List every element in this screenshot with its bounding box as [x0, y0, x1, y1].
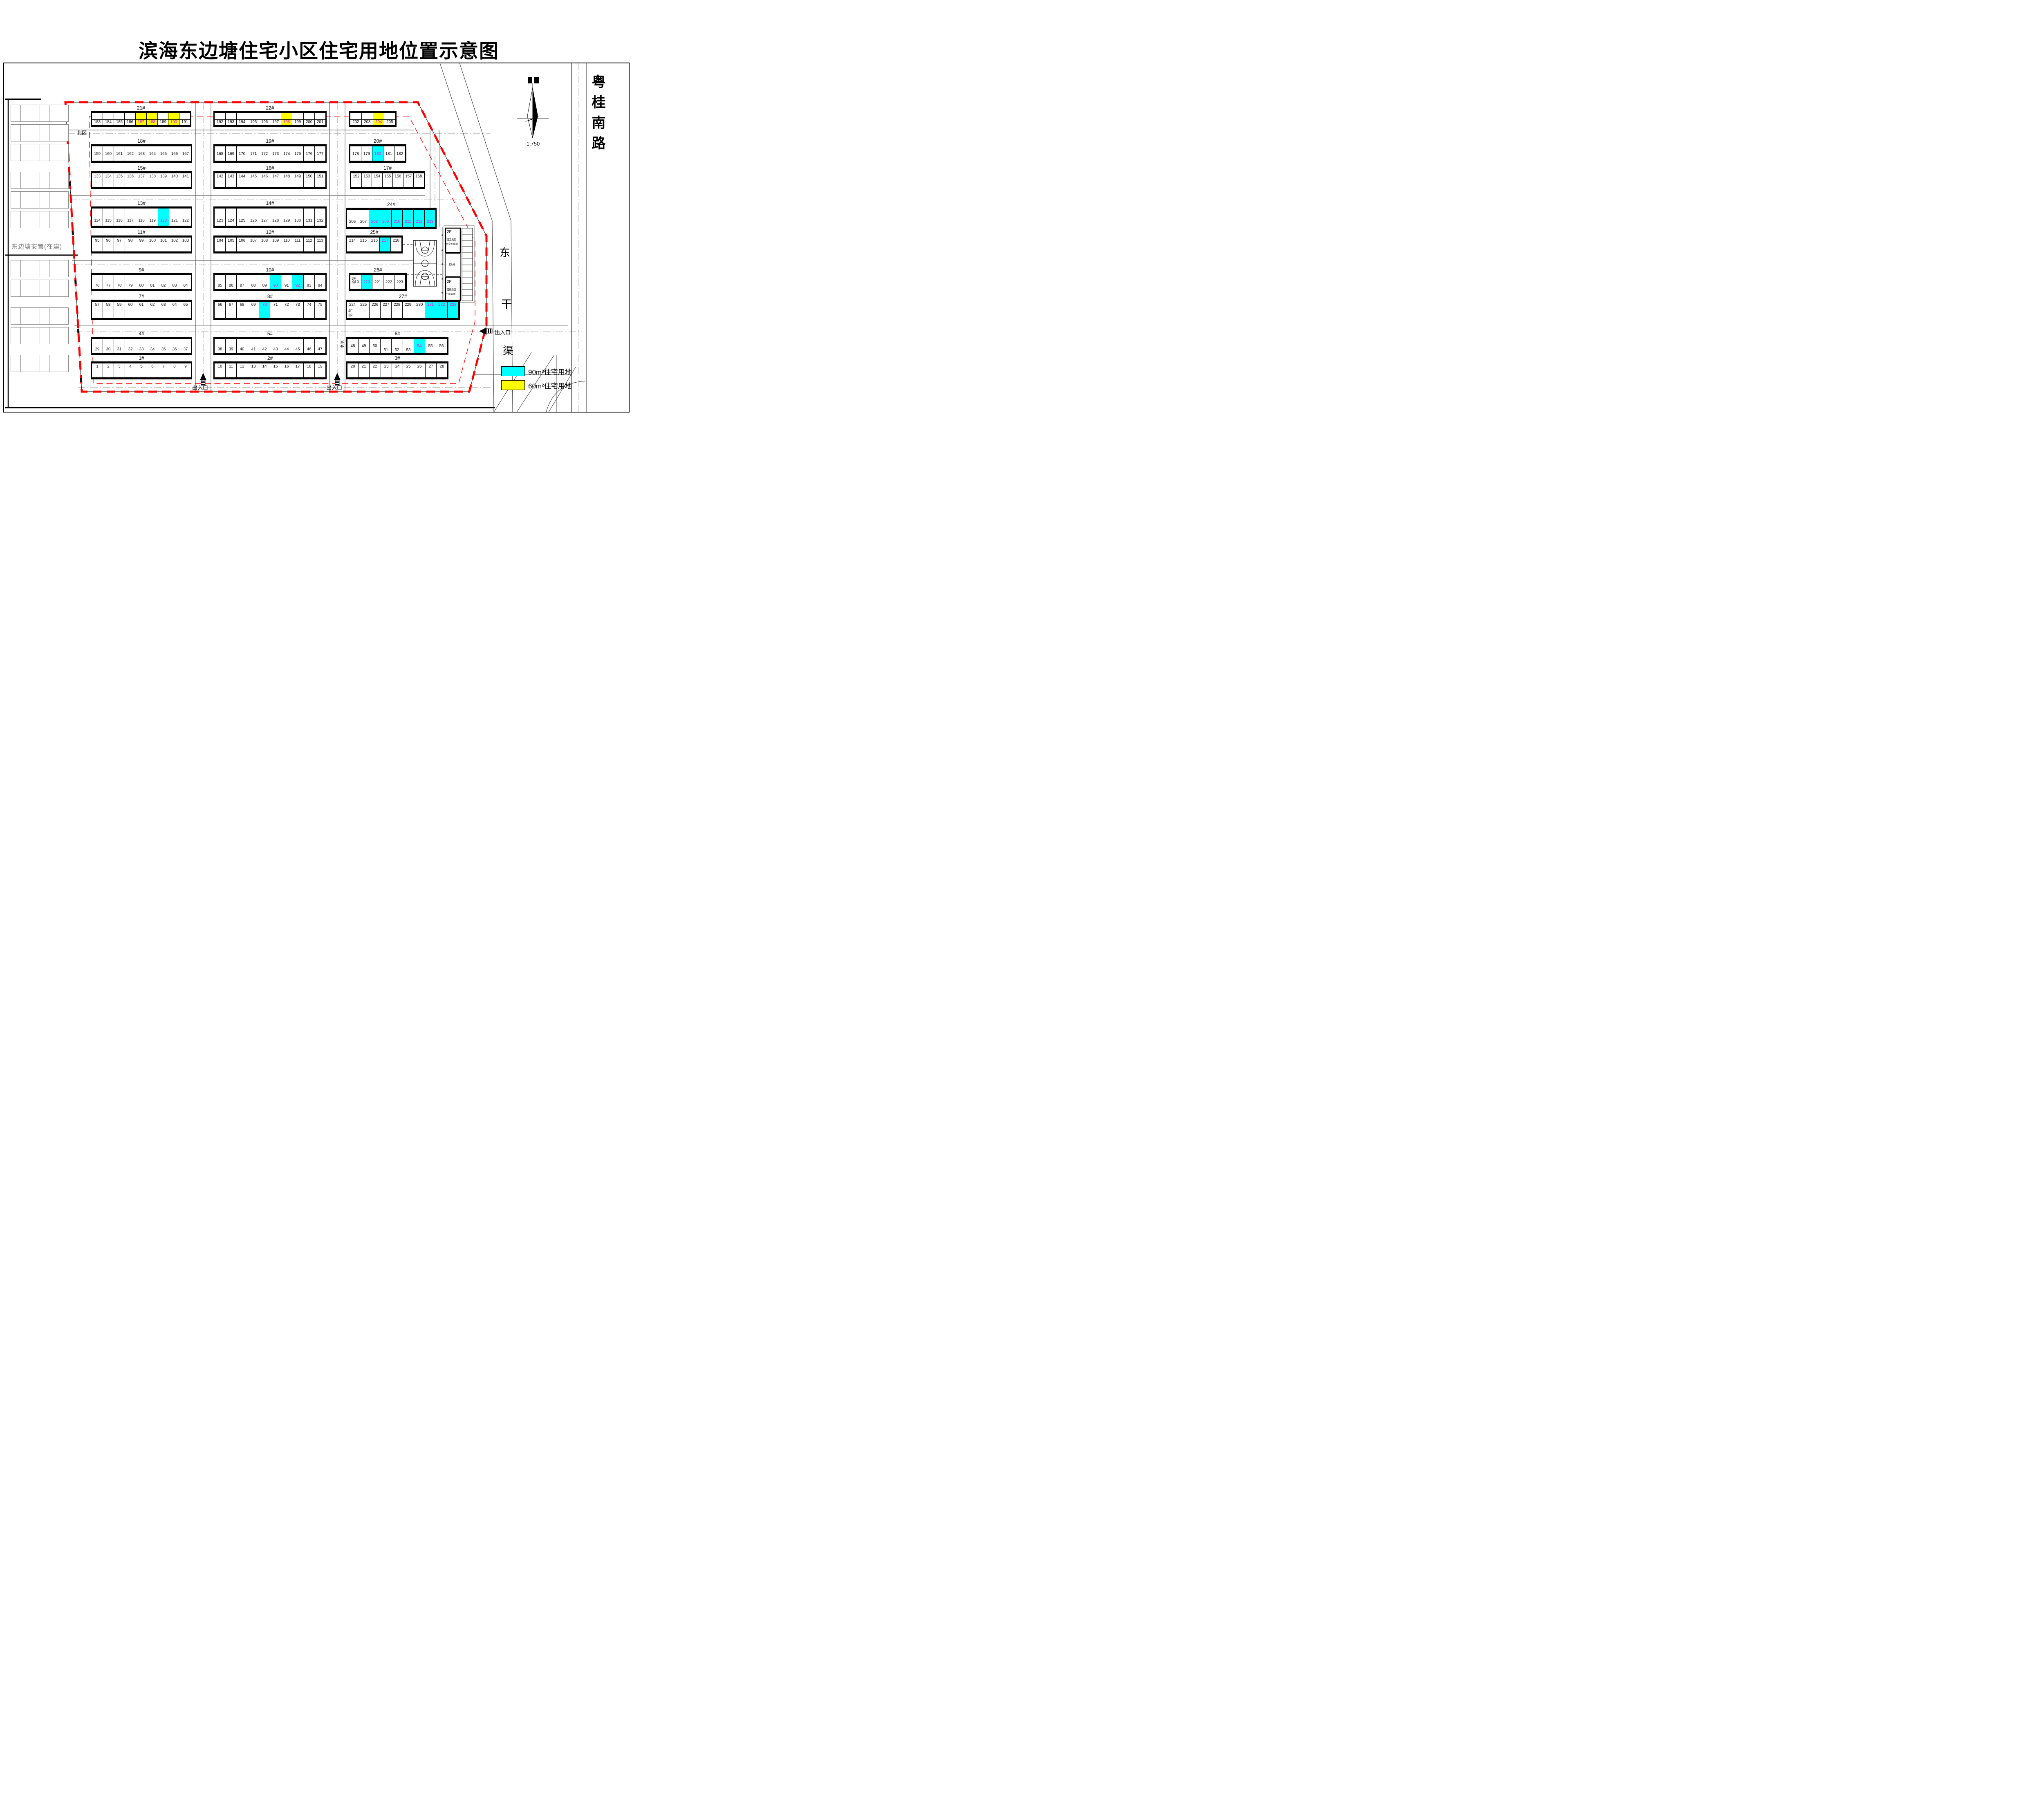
- lot-number: 143: [226, 174, 236, 179]
- lot-number: 73: [293, 303, 303, 307]
- lot-number: 43: [271, 347, 280, 352]
- lot-number: 58: [103, 303, 113, 307]
- lot-number: 177: [315, 151, 325, 156]
- lot-number: 111: [293, 238, 303, 243]
- lot-cell: 110: [281, 238, 292, 251]
- lot-cell: 106: [237, 238, 248, 251]
- lot-cell: 103: [180, 238, 191, 251]
- lot-cell: 46: [304, 339, 315, 353]
- lot-cell: 84: [180, 275, 191, 289]
- lot-cell: 140: [169, 173, 180, 187]
- lot-number: 212: [414, 220, 424, 224]
- lot-cell: 37: [180, 339, 191, 353]
- lot-number: 10: [215, 364, 225, 369]
- lot-cell: 136: [125, 173, 136, 187]
- lot-cell: 146: [259, 173, 270, 187]
- existing-building-cell: [40, 327, 50, 344]
- lot-number: 59: [114, 303, 124, 307]
- lot-cell: 204: [373, 113, 385, 125]
- lot-number: 13: [249, 364, 258, 369]
- lot-number: 167: [181, 151, 191, 156]
- lot-number: 68: [237, 303, 247, 307]
- facility-top-line1: 二层工具房: [444, 237, 456, 241]
- existing-building-cell: [11, 260, 21, 277]
- lot-number: 134: [103, 174, 113, 179]
- lot-number: 81: [148, 283, 157, 288]
- lot-number: 186: [125, 120, 135, 124]
- lot-cell: 99: [136, 238, 147, 251]
- lot-cell: 167: [180, 146, 191, 161]
- lot-number: 154: [372, 174, 382, 179]
- lot-cell: 217: [380, 238, 391, 251]
- lot-number: 140: [170, 174, 179, 179]
- north-zone-label: 北区: [77, 129, 87, 136]
- row-label: 9#: [91, 267, 192, 273]
- lot-number: 122: [181, 218, 191, 223]
- row-strip-4#: 293031323334353637: [91, 337, 192, 355]
- lot-number: 56: [437, 344, 446, 348]
- existing-building-cell: [30, 192, 40, 208]
- lot-cell: 168: [215, 146, 226, 161]
- lot-number: 193: [226, 120, 236, 124]
- lot-number: 2: [103, 364, 113, 369]
- lot-cell: 152: [351, 173, 362, 187]
- lot-cell: 101: [158, 238, 169, 251]
- lot-cell: 62: [147, 302, 158, 318]
- existing-building-cell: [40, 172, 50, 188]
- lot-number: 117: [126, 218, 135, 223]
- lot-cell: 195: [248, 113, 259, 125]
- lot-cell: 176: [304, 146, 315, 161]
- basketball-court: [413, 240, 437, 286]
- lot-number: 89: [260, 283, 269, 288]
- lot-number: 218: [391, 238, 401, 243]
- row-strip-2#: 10111213141516171819: [213, 361, 327, 379]
- lot-cell: 171: [248, 146, 259, 161]
- lot-number: 14: [260, 364, 269, 369]
- existing-building-cell: [59, 144, 69, 161]
- lot-number: 132: [315, 218, 325, 223]
- lot-cell: 26: [414, 363, 425, 377]
- lot-number: 135: [114, 174, 124, 179]
- lot-number: 204: [374, 120, 384, 124]
- existing-building-block: [11, 355, 69, 372]
- lot-cell: 60: [125, 302, 136, 318]
- lot-cell: 185: [114, 113, 125, 125]
- lot-number: 106: [237, 238, 247, 243]
- existing-building-cell: [59, 327, 69, 344]
- existing-building-cell: [59, 260, 69, 277]
- lot-cell: 178: [350, 146, 361, 161]
- lot-cell: 97: [114, 238, 125, 251]
- lot-number: 233: [448, 303, 458, 307]
- lot-number: 166: [170, 151, 179, 156]
- row-strip-3#: 202122232425262728: [346, 361, 448, 379]
- legend-swatch-90sqm: [501, 366, 525, 376]
- lot-cell: 17: [292, 363, 303, 377]
- lot-cell: 181: [383, 146, 394, 161]
- row-strip-26#: 2192202212222233F4F: [349, 273, 407, 291]
- legend: 90m²住宅用地 60m²住宅用地: [501, 366, 572, 394]
- lot-number: 83: [170, 283, 179, 288]
- existing-building-cell: [11, 105, 21, 121]
- lot-number: 221: [373, 280, 383, 285]
- lot-number: 88: [249, 283, 258, 288]
- lot-cell: 174: [281, 146, 292, 161]
- lot-number: 182: [395, 151, 405, 156]
- lot-number: 147: [271, 174, 280, 179]
- lot-cell: 79: [125, 275, 136, 289]
- row-label: 1#: [91, 355, 192, 361]
- lot-cell: 115: [103, 209, 114, 226]
- lot-number: 84: [181, 283, 191, 288]
- lot-number: 42: [260, 347, 269, 352]
- lot-number: 172: [260, 151, 269, 156]
- existing-building-cell: [21, 192, 31, 208]
- existing-building-cell: [49, 192, 59, 208]
- lot-cell: 182: [394, 146, 405, 161]
- existing-building-cell: [21, 144, 31, 161]
- yuegui-south-road: [572, 63, 586, 412]
- lot-cell: 170: [237, 146, 248, 161]
- lot-number: 123: [215, 218, 225, 223]
- row-label: 18#: [91, 138, 192, 144]
- lot-number: 141: [181, 174, 191, 179]
- lot-cell: 193: [226, 113, 237, 125]
- existing-building-cell: [30, 308, 40, 324]
- lot-cell: 205: [384, 113, 395, 125]
- lot-cell: 85: [215, 275, 226, 289]
- lot-cell: 203: [362, 113, 373, 125]
- lot-cell: 206: [347, 210, 358, 227]
- lot-cell: 94: [315, 275, 325, 289]
- lot-number: 131: [304, 218, 314, 223]
- lot-cell: 86: [226, 275, 237, 289]
- lot-cell: 160: [103, 146, 114, 161]
- lot-cell: 22: [370, 363, 381, 377]
- floor-count-label: 4F3F: [348, 309, 353, 317]
- lot-number: 92: [293, 283, 303, 288]
- lot-number: 66: [215, 303, 225, 307]
- existing-building-block: [11, 327, 69, 344]
- lot-number: 55: [426, 344, 435, 348]
- row-label: 17#: [350, 165, 425, 171]
- lot-number: 192: [215, 120, 225, 124]
- lot-number: 171: [249, 151, 258, 156]
- lot-cell: 134: [103, 173, 114, 187]
- existing-building-cell: [40, 355, 50, 372]
- lot-number: 181: [384, 151, 394, 156]
- lot-cell: 18: [304, 363, 315, 377]
- lot-cell: 161: [114, 146, 125, 161]
- row-strip-13#: 114115116117118119120121122: [91, 206, 192, 228]
- lot-number: 173: [271, 151, 280, 156]
- existing-building-cell: [11, 327, 21, 344]
- floor-count-label: 3F4F: [352, 276, 356, 285]
- lot-number: 220: [362, 280, 372, 285]
- lot-cell: 222: [383, 275, 394, 289]
- lot-cell: 52: [392, 339, 403, 353]
- lot-number: 38: [215, 347, 225, 352]
- lot-number: 201: [315, 120, 325, 124]
- lot-number: 214: [347, 238, 357, 243]
- facility-stage-label: 戏台: [449, 262, 455, 267]
- existing-building-cell: [21, 172, 31, 188]
- lot-number: 101: [159, 238, 168, 243]
- lot-number: 87: [237, 283, 247, 288]
- lot-cell: 227: [381, 302, 392, 318]
- lot-cell: 127: [259, 209, 270, 226]
- lot-number: 169: [226, 151, 236, 156]
- row-label: 10#: [213, 267, 327, 273]
- lot-number: 128: [271, 218, 280, 223]
- lot-cell: 15: [270, 363, 281, 377]
- lot-number: 118: [137, 218, 146, 223]
- lot-number: 162: [126, 151, 135, 156]
- lot-cell: 25: [403, 363, 414, 377]
- lot-number: 200: [304, 120, 314, 124]
- row-label: 8#: [213, 294, 327, 299]
- lot-cell: 23: [381, 363, 392, 377]
- lot-cell: 87: [237, 275, 248, 289]
- lot-cell: 214: [347, 238, 358, 251]
- lot-cell: 77: [103, 275, 114, 289]
- lot-number: 210: [392, 220, 402, 224]
- lot-cell: 229: [403, 302, 414, 318]
- lot-number: 115: [103, 218, 113, 223]
- existing-building-cell: [49, 355, 59, 372]
- lot-cell: 45: [292, 339, 303, 353]
- lot-number: 50: [370, 344, 380, 348]
- lot-number: 15: [271, 364, 280, 369]
- lot-number: 29: [92, 347, 102, 352]
- scale-label: 1:750: [522, 141, 545, 147]
- lot-cell: 137: [136, 173, 147, 187]
- lot-number: 121: [170, 218, 179, 223]
- lot-number: 161: [114, 151, 124, 156]
- lot-number: 226: [370, 303, 380, 307]
- lot-cell: 200: [304, 113, 315, 125]
- lot-cell: 211: [403, 210, 414, 227]
- legend-label-90sqm: 90m²住宅用地: [528, 366, 572, 377]
- existing-building-cell: [30, 260, 40, 277]
- lot-cell: 159: [92, 146, 103, 161]
- row-label: 11#: [91, 229, 192, 235]
- lot-cell: 74: [304, 302, 315, 318]
- row-label: 21#: [91, 105, 191, 111]
- lot-number: 103: [181, 238, 191, 243]
- lot-number: 228: [392, 303, 402, 307]
- lot-cell: 12: [237, 363, 248, 377]
- lot-number: 35: [159, 347, 168, 352]
- lot-number: 24: [392, 364, 402, 369]
- canal-char-qu: 渠: [503, 343, 513, 358]
- lot-number: 138: [148, 174, 157, 179]
- lot-cell: 208: [369, 210, 380, 227]
- row-label: 19#: [213, 138, 327, 144]
- existing-building-cell: [49, 308, 59, 324]
- lot-number: 213: [425, 220, 435, 224]
- lot-cell: 196: [259, 113, 270, 125]
- stair-strip: [462, 228, 473, 301]
- row-strip-202-205: 202203204205: [349, 111, 397, 127]
- lot-number: 94: [315, 283, 325, 288]
- lot-cell: 150: [304, 173, 315, 187]
- lot-cell: 95: [92, 238, 103, 251]
- lot-cell: 54: [414, 339, 425, 353]
- existing-building-block: [11, 280, 69, 297]
- lot-number: 136: [126, 174, 135, 179]
- lot-number: 145: [249, 174, 258, 179]
- existing-building-block: [11, 260, 69, 277]
- lot-number: 229: [403, 303, 413, 307]
- lot-number: 137: [137, 174, 146, 179]
- lot-number: 90: [271, 283, 280, 288]
- existing-building-cell: [21, 308, 31, 324]
- lot-number: 127: [260, 218, 269, 223]
- row-label: 7#: [91, 294, 192, 299]
- lot-cell: 57: [92, 302, 103, 318]
- lot-number: 180: [373, 151, 383, 156]
- existing-building-cell: [21, 355, 31, 372]
- existing-building-cell: [11, 355, 21, 372]
- lot-cell: 50: [370, 339, 381, 353]
- lot-number: 222: [384, 280, 394, 285]
- existing-building-cell: [59, 355, 69, 372]
- row-label: 5#: [213, 331, 327, 336]
- row-label: 26#: [349, 267, 407, 273]
- lot-number: 113: [315, 238, 325, 243]
- lot-cell: 16: [281, 363, 292, 377]
- lot-number: 159: [92, 151, 102, 156]
- lot-number: 203: [362, 120, 372, 124]
- lot-cell: 191: [179, 113, 190, 125]
- lot-number: 184: [103, 120, 113, 124]
- existing-building-cell: [30, 327, 40, 344]
- lot-cell: 76: [92, 275, 103, 289]
- lot-number: 124: [226, 218, 236, 223]
- row-strip-10#: 85868788899091929394: [213, 273, 327, 291]
- existing-building-cell: [11, 211, 21, 228]
- entrance-label-south-1: 出入口: [192, 383, 208, 391]
- row-strip-11#: 9596979899100101102103: [91, 235, 192, 253]
- row-strip-15#: 133134135136137138139140141: [91, 171, 192, 189]
- row-strip-20#: 178179180181182: [349, 144, 406, 163]
- existing-building-block: [11, 211, 69, 228]
- lot-number: 41: [249, 347, 258, 352]
- lot-cell: 148: [281, 173, 292, 187]
- row-strip-22#: 192193194195196197198199200201: [213, 111, 327, 127]
- lot-cell: 9: [180, 363, 191, 377]
- lot-cell: 33: [136, 339, 147, 353]
- existing-building-block: [11, 144, 69, 161]
- lot-number: 196: [260, 120, 269, 124]
- lot-cell: 175: [292, 146, 303, 161]
- lot-number: 16: [282, 364, 291, 369]
- entrance-label-east: 出入口: [495, 328, 511, 336]
- lot-cell: 58: [103, 302, 114, 318]
- lot-number: 170: [237, 151, 247, 156]
- lot-number: 152: [352, 174, 361, 179]
- lot-cell: 233: [448, 302, 459, 318]
- existing-building-cell: [30, 280, 40, 296]
- lot-number: 7: [159, 364, 168, 369]
- lot-number: 232: [437, 303, 446, 307]
- lot-cell: 230: [414, 302, 425, 318]
- existing-building-cell: [40, 144, 50, 161]
- lot-cell: 7: [158, 363, 169, 377]
- lot-number: 75: [315, 303, 325, 307]
- lot-number: 67: [226, 303, 236, 307]
- lot-cell: 177: [315, 146, 325, 161]
- lot-number: 98: [126, 238, 135, 243]
- lot-cell: 98: [125, 238, 136, 251]
- lot-cell: 47: [315, 339, 325, 353]
- existing-building-cell: [49, 327, 59, 344]
- lot-number: 39: [226, 347, 236, 352]
- existing-building-cell: [49, 260, 59, 277]
- lot-cell: 112: [304, 238, 315, 251]
- lot-cell: 209: [380, 210, 391, 227]
- lot-cell: 166: [169, 146, 180, 161]
- lot-cell: 198: [281, 113, 292, 125]
- row-strip-27#: 2242252262272282292302312322334F3F: [346, 300, 460, 320]
- lot-number: 100: [148, 238, 157, 243]
- existing-building-cell: [30, 211, 40, 228]
- lot-number: 205: [385, 120, 395, 124]
- existing-building-cell: [11, 192, 21, 208]
- lot-number: 164: [148, 151, 157, 156]
- lot-number: 198: [282, 120, 291, 124]
- existing-building-cell: [30, 105, 40, 121]
- lot-cell: 92: [292, 275, 303, 289]
- row-label: 24#: [346, 202, 437, 207]
- lot-cell: 158: [414, 173, 424, 187]
- existing-building-cell: [30, 125, 40, 141]
- existing-building-cell: [49, 280, 59, 296]
- existing-building-cell: [49, 105, 59, 121]
- lot-number: 6: [148, 364, 157, 369]
- lot-number: 49: [359, 344, 369, 348]
- lot-number: 112: [304, 238, 314, 243]
- lot-cell: 215: [358, 238, 369, 251]
- lot-cell: 40: [237, 339, 248, 353]
- row-strip-1#: 123456789: [91, 361, 192, 379]
- lot-cell: 24: [392, 363, 403, 377]
- lot-cell: 173: [270, 146, 281, 161]
- lot-number: 150: [304, 174, 314, 179]
- lot-number: 157: [404, 174, 413, 179]
- lot-cell: 51: [381, 339, 392, 353]
- lot-number: 53: [403, 348, 413, 352]
- lot-number: 116: [114, 218, 124, 223]
- lot-number: 208: [370, 220, 379, 224]
- existing-building-cell: [30, 172, 40, 188]
- lot-cell: 120: [158, 209, 169, 226]
- legend-label-60sqm: 60m²住宅用地: [528, 380, 572, 390]
- existing-building-cell: [40, 105, 50, 121]
- lot-cell: 88: [248, 275, 259, 289]
- lot-cell: 210: [392, 210, 403, 227]
- row-strip-5#: 38394041424344454647: [213, 337, 327, 355]
- existing-building-cell: [40, 280, 50, 296]
- lot-cell: 201: [315, 113, 325, 125]
- lot-cell: 220: [361, 275, 372, 289]
- row-strip-9#: 767778798081828384: [91, 273, 192, 291]
- existing-building-cell: [11, 280, 21, 296]
- lot-cell: 83: [169, 275, 180, 289]
- lot-cell: 172: [259, 146, 270, 161]
